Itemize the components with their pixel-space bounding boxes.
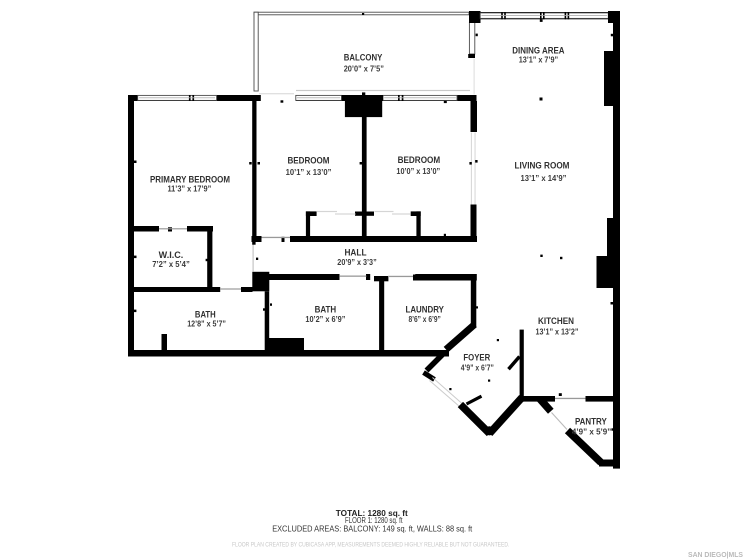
svg-text:7’2” x 5’4”: 7’2” x 5’4” <box>152 260 190 269</box>
svg-text:BATH: BATH <box>195 309 216 319</box>
svg-text:DINING AREA: DINING AREA <box>512 46 565 56</box>
svg-text:FLOOR PLAN CREATED BY CUBICASA: FLOOR PLAN CREATED BY CUBICASA APP, MEAS… <box>232 543 510 549</box>
svg-text:10’1” x 13’0”: 10’1” x 13’0” <box>286 168 332 177</box>
svg-text:10’0” x 13’0”: 10’0” x 13’0” <box>396 167 440 176</box>
svg-text:LAUNDRY: LAUNDRY <box>406 304 445 314</box>
svg-text:11’3” x 17’9”: 11’3” x 17’9” <box>168 185 212 194</box>
svg-text:KITCHEN: KITCHEN <box>538 316 574 326</box>
svg-text:4’9” x 5’9”: 4’9” x 5’9” <box>572 427 611 436</box>
svg-text:W.I.C.: W.I.C. <box>159 250 184 260</box>
svg-text:20’0” x 7’5”: 20’0” x 7’5” <box>344 64 384 73</box>
svg-text:13’1” x 13’2”: 13’1” x 13’2” <box>536 328 579 337</box>
svg-text:BATH: BATH <box>315 304 337 314</box>
svg-text:LIVING ROOM: LIVING ROOM <box>515 161 570 171</box>
svg-text:HALL: HALL <box>344 247 367 257</box>
svg-text:BALCONY: BALCONY <box>344 53 383 63</box>
svg-text:BEDROOM: BEDROOM <box>287 156 329 166</box>
svg-text:10’2” x 6’9”: 10’2” x 6’9” <box>305 315 345 324</box>
svg-text:13’1” x 7’9”: 13’1” x 7’9” <box>519 56 558 65</box>
svg-text:PANTRY: PANTRY <box>575 416 607 426</box>
svg-text:13’1” x 14’9”: 13’1” x 14’9” <box>521 174 567 183</box>
svg-text:BEDROOM: BEDROOM <box>398 155 441 165</box>
svg-text:4’9” x 6’7”: 4’9” x 6’7” <box>461 364 494 373</box>
svg-text:FOYER: FOYER <box>463 352 490 362</box>
svg-text:8’6” x 6’9”: 8’6” x 6’9” <box>409 315 441 324</box>
svg-text:SAN DIEGO|MLS: SAN DIEGO|MLS <box>688 550 743 559</box>
svg-text:12’8” x 5’7”: 12’8” x 5’7” <box>187 319 226 328</box>
svg-text:EXCLUDED AREAS: BALCONY: 149 s: EXCLUDED AREAS: BALCONY: 149 sq. ft, WAL… <box>272 524 473 533</box>
svg-text:PRIMARY BEDROOM: PRIMARY BEDROOM <box>150 175 230 185</box>
svg-text:20’9” x 3’3”: 20’9” x 3’3” <box>337 258 376 267</box>
